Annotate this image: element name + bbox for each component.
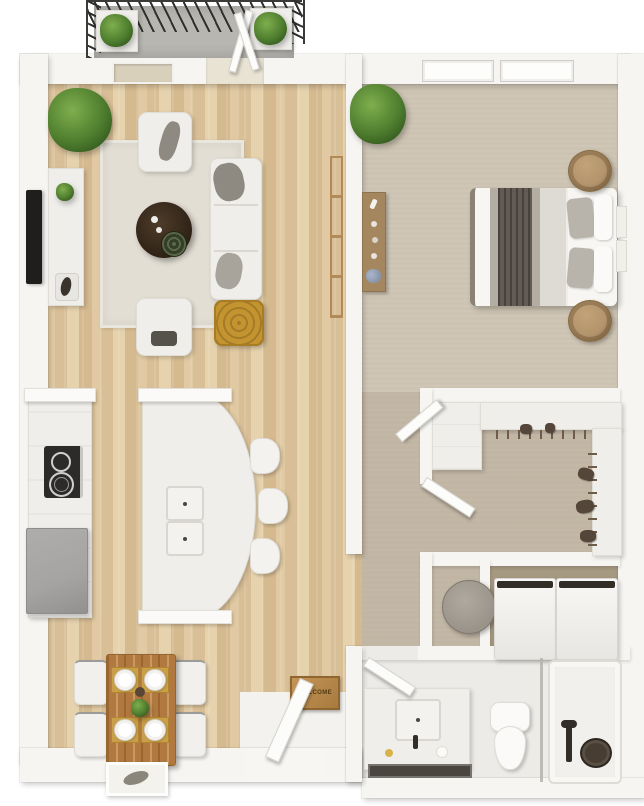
bedroom-window-1: [422, 60, 494, 82]
bedroom-wall-art-2: [616, 240, 627, 272]
vanity-sink: [395, 699, 441, 741]
gold-pouf: [214, 300, 264, 346]
plate-1: [114, 669, 136, 691]
sofa: [210, 158, 262, 300]
bathroom-door-opening: [364, 646, 418, 660]
blanket-ladder: [330, 156, 343, 318]
bedroom-window-2: [500, 60, 574, 82]
bathroom-vanity: [364, 688, 470, 770]
dining-chair-3: [172, 660, 206, 705]
nightstand-bottom: [568, 300, 612, 342]
table-cup-2: [156, 227, 162, 233]
living-room-window: [112, 62, 174, 84]
tray-leaf-decor: [59, 276, 73, 297]
wall-tv: [26, 190, 42, 284]
media-console: [48, 168, 84, 306]
hanging-clothes-5: [580, 530, 596, 542]
boxwood-bush-left: [100, 14, 133, 47]
vanity-front-mat: [368, 764, 472, 778]
bedroom-wall-art-1: [616, 206, 627, 238]
closet-top-wall: [420, 388, 620, 402]
dresser-candle: [369, 198, 378, 209]
vanity-faucet: [413, 735, 418, 749]
plate-3: [114, 719, 136, 741]
bathtub: [548, 660, 622, 784]
island-cap-bottom: [138, 610, 232, 624]
front-door-opening: [246, 748, 326, 782]
framed-leaf-mat: [106, 762, 168, 796]
vanity-soap: [385, 749, 393, 757]
sofa-throw-top: [210, 160, 247, 203]
nightstand-top: [568, 150, 612, 192]
pillow-white-2: [594, 246, 612, 292]
burner-small: [51, 452, 71, 472]
kitchen-counter-cap: [24, 388, 96, 402]
center-plant: [131, 699, 149, 717]
closet-hanger-rod-top: [496, 430, 588, 439]
console-plant: [56, 183, 74, 201]
pillow-grey-2: [566, 247, 595, 289]
hanging-clothes-1: [520, 424, 532, 434]
boxwood-bush-right: [254, 12, 287, 45]
living-room-plant: [48, 88, 112, 152]
sofa-cushion-seam-2: [214, 250, 258, 252]
table-cup-1: [151, 216, 158, 223]
floor-plan: WELCOME: [0, 0, 644, 806]
tub-round-tray: [580, 738, 612, 768]
balcony-planter-left: [96, 10, 138, 52]
center-bowl: [135, 687, 145, 697]
bed: [470, 188, 617, 306]
tub-faucet-stand: [566, 726, 572, 762]
bar-stool-1: [250, 438, 280, 474]
laundry-basket: [442, 580, 496, 634]
dryer: [556, 578, 618, 660]
dining-chair-4: [172, 712, 206, 757]
bedroom-dresser: [362, 192, 386, 292]
hanging-clothes-2: [545, 423, 555, 433]
round-coffee-table: [136, 202, 192, 258]
washer: [494, 578, 556, 660]
bathroom-left-wall: [346, 646, 362, 782]
cooktop: [44, 446, 83, 498]
sofa-throw-bottom: [213, 251, 245, 291]
sofa-cushion-seam-1: [214, 204, 258, 206]
table-round-tray: [162, 232, 186, 256]
dining-chair-2: [74, 712, 108, 757]
dresser-flowers: [366, 269, 381, 283]
bar-stool-2: [258, 488, 288, 524]
burner-large: [49, 472, 74, 497]
laundry-niche-left-wall: [420, 552, 432, 656]
plate-4: [144, 719, 166, 741]
island-sink-2: [166, 521, 204, 556]
shower-glass-partition: [540, 658, 543, 782]
island-cap-top: [138, 388, 232, 402]
armchair-top: [138, 112, 192, 172]
armchair-top-throw: [156, 119, 183, 162]
bed-duvet-fold: [540, 188, 568, 306]
armchair-bottom-cushion: [151, 331, 177, 346]
dining-chair-1: [74, 660, 108, 705]
dining-table: [106, 654, 176, 766]
laundry-top-wall: [420, 552, 620, 566]
island-sink-1: [166, 486, 204, 521]
leaf-print: [122, 768, 150, 787]
dresser-bottle-1: [371, 221, 377, 227]
dresser-bottle-3: [371, 253, 377, 259]
dresser-bottle-2: [372, 237, 378, 243]
console-tray: [55, 273, 79, 301]
bed-runner: [498, 188, 532, 306]
refrigerator: [26, 528, 88, 614]
armchair-bottom: [136, 298, 192, 356]
plate-2: [144, 669, 166, 691]
pillow-grey-1: [566, 197, 596, 239]
vanity-flower-decor: [437, 747, 447, 757]
bedroom-plant: [350, 84, 406, 144]
balcony-railing-right: [290, 0, 305, 44]
balcony-planter-right: [250, 8, 292, 50]
closet-left-wall: [420, 388, 432, 484]
pillow-white-1: [594, 194, 612, 240]
closet-corner-cabinet: [432, 402, 482, 470]
bar-stool-3: [250, 538, 280, 574]
